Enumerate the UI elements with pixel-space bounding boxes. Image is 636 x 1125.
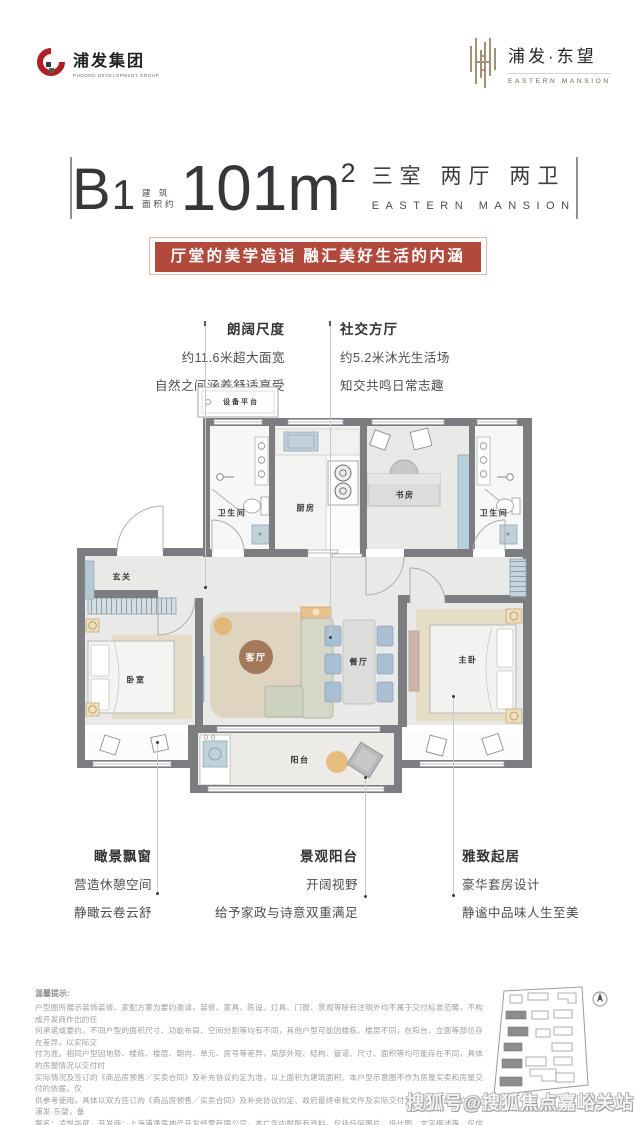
eastern-mansion-name: 浦发·东望	[508, 42, 611, 67]
leader-dot-3b	[156, 892, 159, 895]
room-label-master-bedroom: 主卧	[459, 655, 478, 666]
room-label-bathroom-left: 卫生间	[218, 508, 247, 519]
leader-line-5	[453, 698, 454, 895]
callout-top-right: 社交方厅 约5.2米沐光生活场 知交共鸣日常志趣	[340, 318, 450, 394]
unit-code: B1	[72, 163, 136, 216]
callout-bottom-right: 雅致起居 豪华套房设计 静谧中品味人生至美	[462, 845, 579, 921]
leader-line-1	[205, 326, 206, 587]
leader-line-2	[330, 326, 331, 637]
leader-dot-4a	[364, 776, 367, 779]
room-label-equipment-platform: 设备平台	[223, 397, 259, 407]
area-prefix: 建 筑 面积约	[142, 188, 177, 210]
room-label-bedroom: 卧室	[127, 675, 146, 686]
compass-icon	[593, 992, 607, 1006]
callout-bottom-mid: 景观阳台 开阔视野 给予家政与诗意双重满足	[215, 845, 358, 921]
area-value: 101m2	[181, 160, 356, 216]
layout-en-text: EASTERN MANSION	[372, 200, 576, 212]
pudong-group-subtitle: PUDONG DEVELOPMENT GROUP	[73, 73, 159, 78]
leader-tick-1	[204, 321, 206, 326]
pudong-group-logo: 浦发集团 PUDONG DEVELOPMENT GROUP	[36, 46, 159, 78]
room-label-balcony: 阳台	[291, 755, 310, 766]
leader-line-3	[157, 744, 158, 893]
room-label-study: 书房	[396, 490, 415, 501]
leader-dot-2	[329, 636, 332, 639]
eastern-mansion-emblem-icon	[468, 34, 498, 92]
floor-plan-drawing	[60, 385, 595, 830]
leader-line-4	[365, 779, 366, 896]
eastern-mansion-logo: 浦发·东望 EASTERN MANSION	[468, 34, 611, 92]
pudong-group-logo-icon	[36, 46, 66, 78]
leader-tick-2	[329, 321, 331, 326]
leader-dot-5b	[452, 894, 455, 897]
leader-dot-1	[204, 586, 207, 589]
room-label-kitchen: 厨房	[297, 503, 316, 514]
leader-dot-5a	[452, 695, 455, 698]
bracket-right	[576, 157, 578, 219]
eastern-mansion-subtitle: EASTERN MANSION	[508, 73, 611, 85]
room-label-bathroom-right: 卫生间	[480, 508, 509, 519]
callout-bottom-left: 瞰景飘窗 营造休憩空间 静瞰云卷云舒	[74, 845, 152, 921]
disclaimer-title: 温馨提示:	[35, 988, 483, 999]
poster-page: 浦发集团 PUDONG DEVELOPMENT GROUP 浦发·东望 EAST…	[0, 0, 636, 1125]
leader-dot-3a	[156, 741, 159, 744]
room-label-dining-room: 餐厅	[350, 657, 369, 668]
leader-dot-4b	[364, 895, 367, 898]
callout-top-left: 朗阔尺度 约11.6米超大面宽 自然之间涵养舒适享受	[155, 318, 285, 394]
pudong-group-name: 浦发集团	[73, 47, 159, 71]
floor-plan	[60, 385, 595, 830]
room-label-foyer: 玄关	[113, 572, 132, 583]
slogan-banner-frame	[149, 237, 487, 275]
unit-title-block: B1 建 筑 面积约 101m2 三室 两厅 两卫 EASTERN MANSIO…	[70, 150, 566, 226]
watermark: 搜狐号@搜狐焦点嘉峪关站	[406, 1089, 634, 1115]
layout-text: 三室 两厅 两卫	[372, 160, 576, 190]
room-label-living-room: 客厅	[245, 651, 266, 664]
